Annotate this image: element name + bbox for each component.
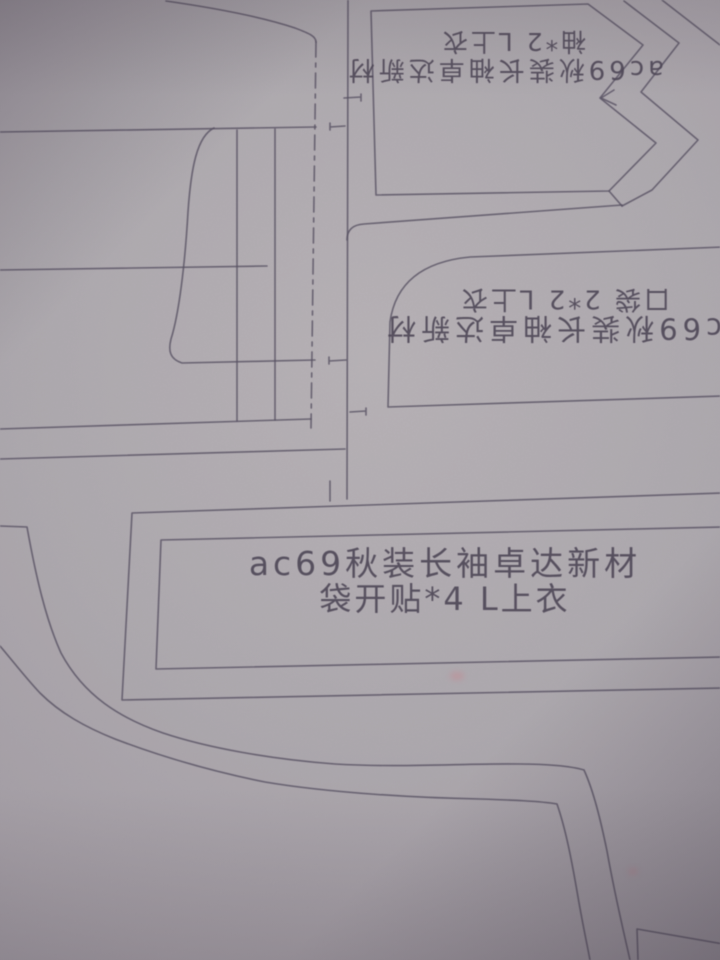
label-part-line: 口袋 2*2 L上衣 <box>368 284 670 312</box>
label-part-line: 袖*2 L上衣 <box>362 28 664 55</box>
center-piece-label: ac69秋装长袖卓达新材 袋开贴*4 L上衣 <box>225 546 665 616</box>
photo-grain <box>0 0 720 960</box>
label-part-line: 袋开贴*4 L上衣 <box>225 582 665 617</box>
middle-right-piece-label: c69秋装长袖卓达新材 口袋 2*2 L上衣 <box>368 284 720 343</box>
pattern-line-drawing <box>0 0 720 960</box>
label-style-line: c69秋装长袖卓达新材 <box>368 312 720 343</box>
label-style-line: ac69秋装长袖卓达新材 <box>362 55 664 83</box>
pattern-paper-photo: ac69秋装长袖卓达新材 袋开贴*4 L上衣 ac69秋装长袖卓达新材 袖*2 … <box>0 0 720 960</box>
label-style-line: ac69秋装长袖卓达新材 <box>225 546 665 582</box>
top-right-piece-label: ac69秋装长袖卓达新材 袖*2 L上衣 <box>362 28 664 83</box>
photo-content: ac69秋装长袖卓达新材 袋开贴*4 L上衣 ac69秋装长袖卓达新材 袖*2 … <box>0 0 720 960</box>
